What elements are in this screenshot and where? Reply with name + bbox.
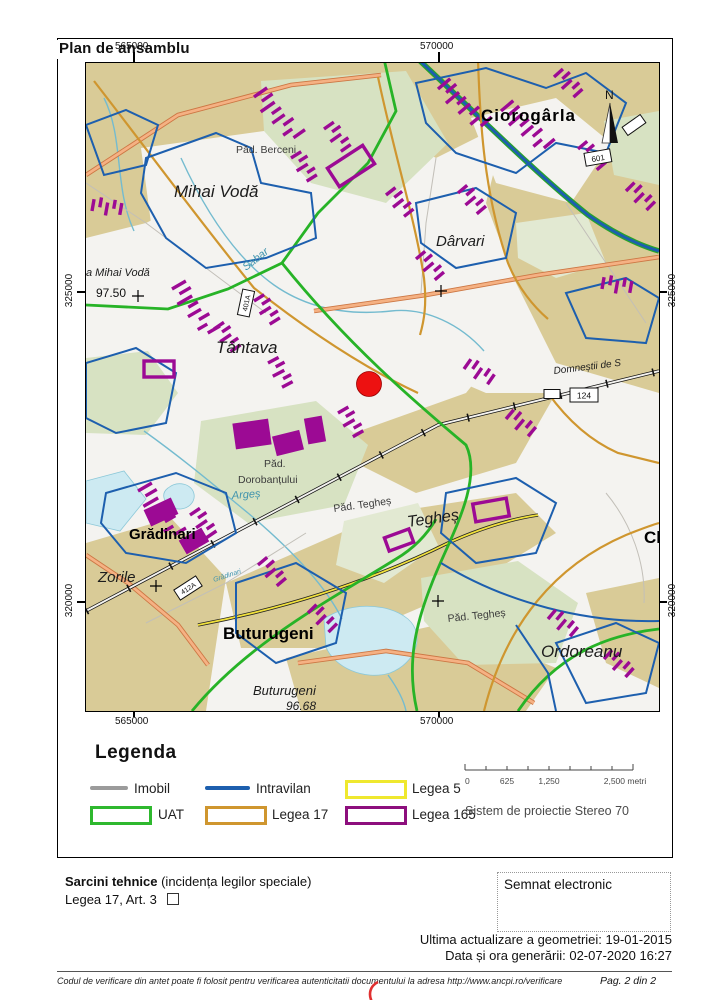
legend-swatch-imobil [90, 786, 128, 790]
legend-label-legea17: Legea 17 [272, 807, 328, 822]
svg-text:N: N [605, 88, 614, 102]
footer-divider [57, 971, 672, 972]
legend-swatch-legea5 [345, 780, 407, 799]
sarcini-bold: Sarcini tehnice [65, 874, 157, 889]
map-label-elev-9668: 96.68 [286, 699, 316, 711]
grid-label-left-bottom: 320000 [64, 584, 75, 617]
projection-note: Sistem de proiectie Stereo 70 [465, 804, 629, 818]
map-label-pad-dor-2: Dorobanțului [238, 474, 298, 486]
generation-date-line: Data și ora generării: 02-07-2020 16:27 [445, 948, 672, 963]
legend-label-legea5: Legea 5 [412, 781, 461, 796]
legend-label-imobil: Imobil [134, 781, 170, 796]
stamp-fragment [362, 980, 392, 1000]
road-shield-blank-small [544, 390, 560, 399]
grid-label-top-left: 565000 [115, 41, 148, 52]
map-label-tantava: Tântava [216, 338, 277, 357]
scale-label-0: 0 [465, 776, 470, 786]
grid-tick [659, 601, 667, 603]
location-marker [357, 372, 382, 397]
geometry-update-line: Ultima actualizare a geometriei: 19-01-2… [420, 932, 672, 947]
grid-tick [438, 52, 440, 62]
grid-tick [77, 291, 85, 293]
page-number: Pag. 2 din 2 [600, 975, 656, 987]
legend-swatch-intravilan [205, 786, 250, 790]
verification-note: Codul de verificare din antet poate fi f… [57, 976, 597, 986]
checkbox[interactable] [167, 893, 179, 905]
signature-box: Semnat electronic [497, 872, 671, 932]
document-page: Plan de ansamblu 565000 570000 565000 57… [0, 0, 713, 1000]
scale-label-625: 625 [500, 776, 514, 786]
map-label-pad-berceni: Păd. Berceni [236, 144, 296, 156]
svg-text:124: 124 [577, 391, 591, 401]
grid-label-bottom-right: 570000 [420, 716, 453, 727]
map-label-manastirea: a Mihai Vodă [86, 267, 150, 279]
signature-label: Semnat electronic [498, 873, 670, 896]
legend-title: Legenda [95, 742, 177, 764]
map-label-gradinari: Grădinari [129, 526, 196, 543]
map-label-zorile: Zorile [97, 569, 136, 586]
scale-label-1250: 1,250 [538, 776, 560, 786]
grid-tick [133, 52, 135, 62]
legend-label-intravilan: Intravilan [256, 781, 311, 796]
map-label-arges: Argeș [230, 488, 261, 502]
sarcini-tehnice-line: Sarcini tehnice (incidența legilor speci… [65, 874, 311, 889]
map-label-clinceni: Clinceni [644, 528, 659, 547]
legend-label-uat: UAT [158, 807, 184, 822]
map-label-mihai-voda: Mihai Vodă [174, 182, 258, 201]
grid-label-top-right: 570000 [420, 41, 453, 52]
legend-swatch-uat [90, 806, 152, 825]
scale-label-2500: 2,500 metri [604, 776, 647, 786]
map-svg: 601 124 401A 412A N Păd. Ber [86, 63, 659, 711]
grid-label-left-top: 325000 [64, 274, 75, 307]
legend-swatch-legea165 [345, 806, 407, 825]
legea-17-line: Legea 17, Art. 3 [65, 892, 179, 907]
map-label-ordoreanu: Ordoreanu [541, 642, 623, 661]
grid-tick [77, 601, 85, 603]
map-label-ciorogarla: Ciorogârla [481, 106, 576, 125]
scale-bar: 0 625 1,250 2,500 metri [463, 762, 658, 799]
map-label-buturugeni: Buturugeni [223, 624, 314, 643]
grid-label-right-bottom: 320000 [667, 584, 678, 617]
map-label-darvari: Dârvari [436, 233, 485, 250]
legend-swatch-legea17 [205, 806, 267, 825]
map-label-pad-dor-1: Păd. [264, 458, 286, 470]
grid-label-bottom-left: 565000 [115, 716, 148, 727]
map-label-buturugeni-it: Buturugeni [253, 683, 317, 698]
sarcini-rest: (incidența legilor speciale) [157, 874, 311, 889]
road-shield-124: 124 [570, 388, 598, 402]
map-canvas: 601 124 401A 412A N Păd. Ber [85, 62, 660, 712]
grid-tick [659, 291, 667, 293]
grid-label-right-top: 325000 [667, 274, 678, 307]
map-label-elev-9750: 97.50 [96, 286, 126, 300]
